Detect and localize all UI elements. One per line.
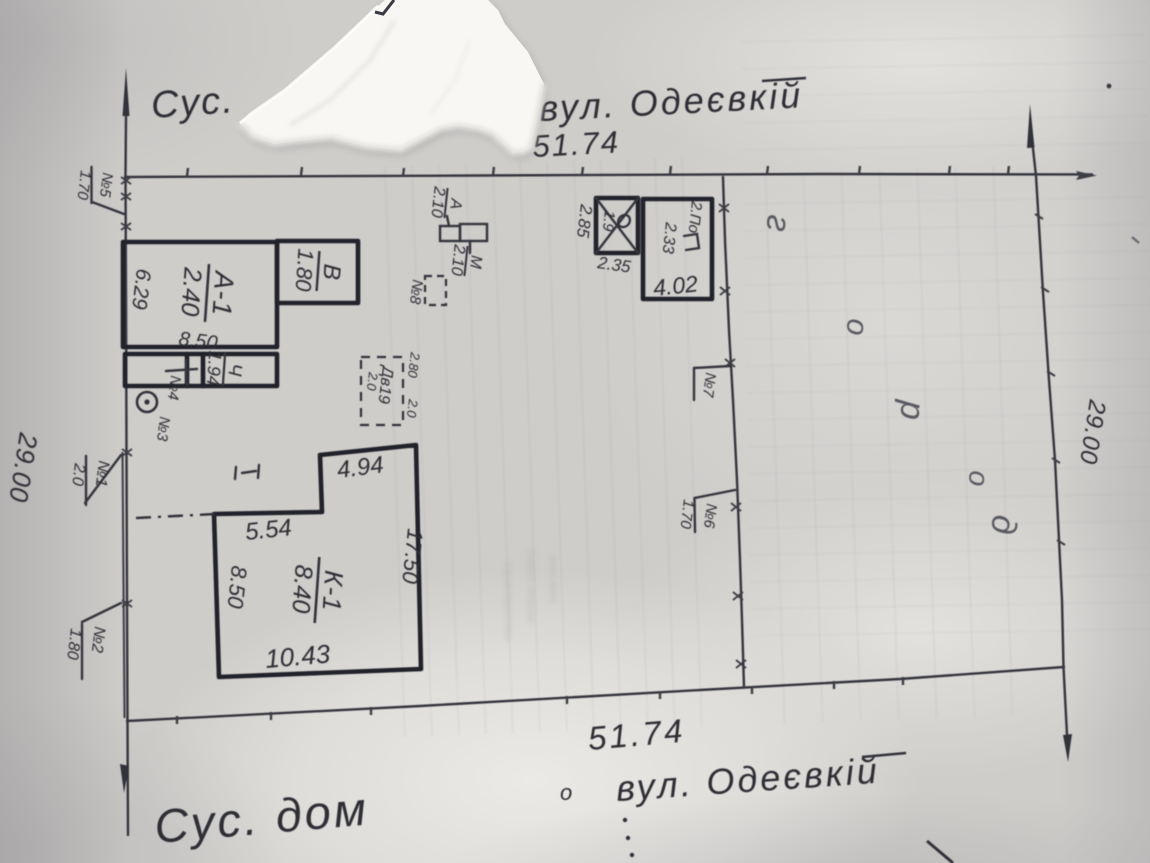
svg-text:В: В — [317, 263, 345, 281]
svg-text:2.0: 2.0 — [404, 398, 421, 420]
svg-text:К-1: К-1 — [317, 569, 350, 612]
svg-text:М: М — [466, 254, 484, 270]
svg-text:А-1: А-1 — [206, 269, 239, 318]
svg-text:опис меж: опис меж — [547, 555, 559, 603]
svg-text:о: о — [840, 317, 874, 337]
svg-text:А: А — [446, 197, 464, 210]
svg-text:№8: №8 — [406, 279, 426, 306]
svg-text:4.94: 4.94 — [335, 451, 385, 483]
svg-text:№6: №6 — [700, 503, 720, 530]
svg-text:4.02: 4.02 — [652, 270, 699, 301]
svg-text:2.40: 2.40 — [175, 266, 206, 318]
svg-text:5.54: 5.54 — [244, 514, 293, 546]
svg-text:2.10: 2.10 — [427, 185, 447, 219]
svg-text:1.70: 1.70 — [73, 170, 94, 202]
svg-text:р: р — [892, 398, 932, 421]
svg-text:Характеристика: Характеристика — [502, 560, 514, 643]
svg-text:№5: №5 — [96, 172, 116, 199]
svg-text:о: о — [963, 469, 995, 487]
svg-text:№2: №2 — [88, 626, 108, 654]
svg-text:№7: №7 — [699, 372, 719, 399]
svg-text:г: г — [759, 213, 798, 233]
svg-text:Ч: Ч — [224, 363, 246, 377]
svg-text:№4: №4 — [164, 375, 184, 401]
svg-text:8.40: 8.40 — [286, 564, 317, 615]
svg-text:10.43: 10.43 — [264, 638, 332, 674]
svg-text:2.0: 2.0 — [364, 371, 381, 393]
svg-text:№3: №3 — [153, 416, 173, 443]
svg-text:8.50: 8.50 — [222, 564, 251, 610]
svg-text:2.33: 2.33 — [659, 221, 679, 255]
svg-text:№1: №1 — [92, 460, 112, 488]
svg-text:будівлі огорожі: будівлі огорожі — [525, 548, 537, 624]
svg-text:51.74: 51.74 — [532, 124, 621, 164]
svg-text:д: д — [983, 513, 1024, 536]
svg-text:о: о — [560, 780, 572, 805]
svg-text:1.70: 1.70 — [676, 499, 697, 531]
svg-text:1.94: 1.94 — [203, 350, 225, 386]
svg-text:2.10: 2.10 — [447, 243, 467, 277]
svg-text:2.По: 2.По — [685, 200, 705, 234]
svg-text:Сус.: Сус. — [150, 79, 236, 127]
svg-text:1.80: 1.80 — [291, 248, 319, 293]
svg-text:1.9: 1.9 — [599, 210, 618, 233]
svg-text:2.0: 2.0 — [68, 462, 88, 487]
